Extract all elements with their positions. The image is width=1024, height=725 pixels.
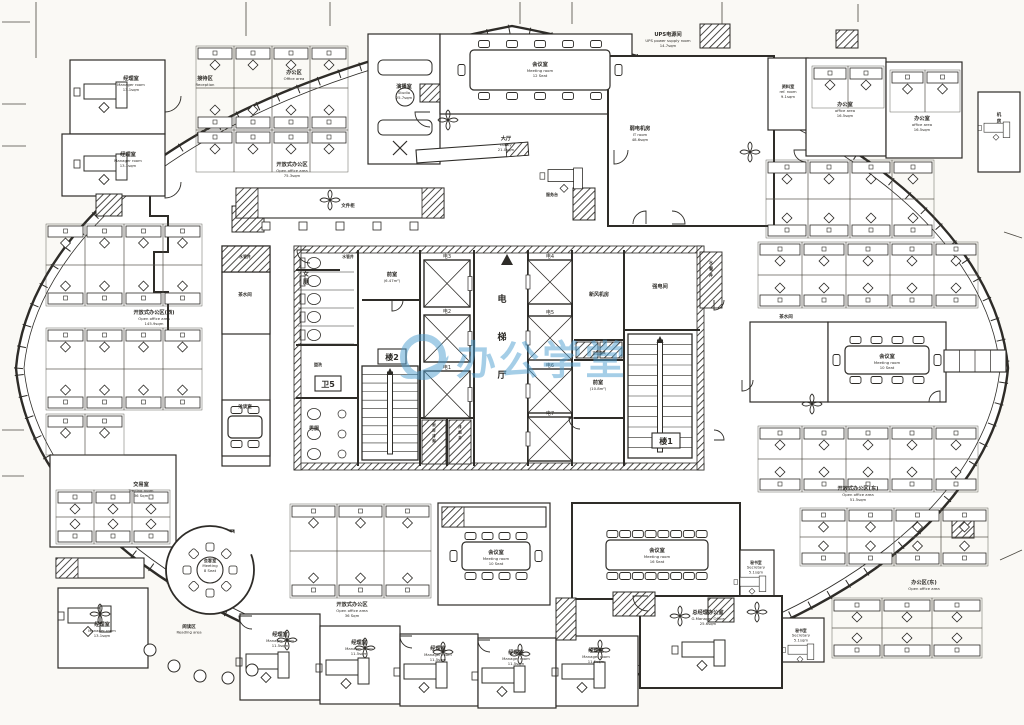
svg-text:前室: 前室 — [593, 378, 603, 386]
room-label: 强电间 — [652, 282, 668, 290]
elevator-shaft: 电7 — [526, 410, 572, 461]
svg-text:经理室: 经理室 — [351, 638, 367, 646]
room-label: 洽谈室 — [238, 403, 252, 410]
svg-text:8 Seat: 8 Seat — [204, 568, 217, 573]
svg-text:10 Seat: 10 Seat — [880, 365, 895, 370]
svg-text:11.5sqm: 11.5sqm — [272, 643, 289, 648]
elevator-shaft: 电2 — [424, 308, 472, 362]
svg-text:电5: 电5 — [546, 309, 554, 316]
cubicle-cluster — [766, 160, 934, 238]
svg-text:楼1: 楼1 — [659, 436, 673, 446]
svg-text:会议室: 会议室 — [488, 548, 504, 556]
elevator-shaft: 电3 — [424, 253, 472, 307]
svg-text:前室: 前室 — [387, 270, 397, 278]
counter — [56, 558, 144, 578]
counter — [944, 350, 1006, 372]
svg-text:电6: 电6 — [546, 362, 554, 369]
svg-text:茶水间: 茶水间 — [237, 291, 252, 298]
room-pantry-w — [222, 272, 270, 334]
elevator-shaft: 电5 — [526, 309, 572, 360]
svg-text:接待区: 接待区 — [197, 74, 213, 82]
counter — [236, 188, 444, 230]
svg-text:开放式办公区: 开放式办公区 — [276, 160, 308, 168]
svg-text:Reception: Reception — [196, 82, 216, 87]
room-label: 会客室Meeting8 Seat — [202, 557, 218, 573]
svg-text:洽谈室: 洽谈室 — [238, 403, 252, 410]
svg-text:新风机房: 新风机房 — [589, 291, 609, 298]
svg-text:电1: 电1 — [443, 364, 451, 371]
svg-text:文件柜: 文件柜 — [341, 202, 355, 209]
svg-text:16.5sqm: 16.5sqm — [914, 127, 931, 132]
room-label: 机房 — [997, 111, 1002, 125]
svg-text:演播室: 演播室 — [396, 82, 412, 90]
svg-text:机房: 机房 — [997, 111, 1002, 125]
room-label: 办公室office area16.5sqm — [835, 100, 855, 118]
svg-text:会议室: 会议室 — [879, 352, 895, 360]
svg-text:大厅: 大厅 — [501, 134, 512, 142]
svg-text:36 Sqm: 36 Sqm — [345, 613, 360, 618]
svg-text:75.3sqm: 75.3sqm — [284, 173, 301, 178]
room-pantry-e — [750, 322, 828, 402]
floor-plan-drawing: 电3电2电1电4电5电6电7卫5楼2楼1经理室Manager room13.1s… — [0, 0, 1024, 725]
room-label: 接待区Reception — [196, 74, 216, 87]
svg-text:经理室: 经理室 — [120, 150, 136, 158]
elevator-shaft: 电1 — [424, 364, 472, 418]
room-label: 演播室Studio25.7sqm — [396, 82, 413, 100]
svg-text:48.6sqm: 48.6sqm — [632, 137, 649, 142]
svg-text:36 Sqm: 36 Sqm — [134, 493, 149, 498]
svg-text:13.1sqm: 13.1sqm — [94, 633, 111, 638]
svg-text:电3: 电3 — [443, 253, 451, 260]
svg-text:经理室: 经理室 — [430, 644, 446, 652]
svg-text:25.7sqm: 25.7sqm — [396, 95, 413, 100]
svg-text:办公区(东): 办公区(东) — [911, 578, 937, 586]
svg-text:11.5sqm: 11.5sqm — [508, 661, 525, 666]
svg-text:办公区: 办公区 — [286, 68, 302, 76]
svg-text:电4: 电4 — [546, 253, 554, 260]
svg-text:11.5sqm: 11.5sqm — [588, 659, 605, 664]
svg-text:14.7sqm: 14.7sqm — [660, 43, 677, 48]
room-label: 办公区(东)Open office area — [908, 578, 939, 591]
svg-text:经理室: 经理室 — [508, 648, 524, 656]
svg-text:25.6sqm: 25.6sqm — [700, 621, 717, 626]
svg-text:弱电机房: 弱电机房 — [630, 124, 651, 132]
svg-text:会议室: 会议室 — [532, 60, 548, 68]
floor-plan-page: 电3电2电1电4电5电6电7卫5楼2楼1经理室Manager room13.1s… — [0, 0, 1024, 725]
svg-text:交易室: 交易室 — [133, 480, 149, 488]
cubicle-cluster — [758, 242, 978, 308]
room-label: 茶水间 — [237, 291, 252, 298]
cubicle-cluster — [46, 224, 202, 306]
svg-text:经理室: 经理室 — [94, 620, 110, 628]
room-label: 茶水间 — [778, 313, 793, 320]
svg-text:(10.8m²): (10.8m²) — [590, 386, 607, 391]
svg-text:13.1sqm: 13.1sqm — [120, 163, 137, 168]
room-label: 男厕 — [308, 425, 319, 432]
svg-text:总经理办公室: 总经理办公室 — [692, 608, 723, 616]
room-label: 新风机房 — [589, 291, 609, 298]
svg-text:楼2: 楼2 — [385, 352, 399, 362]
svg-text:电7: 电7 — [546, 410, 554, 417]
svg-text:经理室: 经理室 — [588, 646, 604, 654]
svg-text:9.1sqm: 9.1sqm — [781, 94, 795, 99]
shaft — [576, 342, 598, 358]
svg-text:强电间: 强电间 — [652, 282, 668, 290]
shaft — [600, 342, 622, 358]
svg-text:(6.47m²): (6.47m²) — [384, 278, 401, 283]
room-label: 办公室office area16.5sqm — [912, 114, 932, 132]
room-label: 文件柜 — [341, 202, 355, 209]
svg-text:办公室: 办公室 — [914, 114, 930, 122]
svg-text:5.1sqm: 5.1sqm — [749, 570, 763, 575]
svg-text:办公室: 办公室 — [837, 100, 853, 108]
svg-text:男厕: 男厕 — [308, 425, 319, 432]
cubicle-cluster — [800, 508, 988, 566]
svg-text:水管井: 水管井 — [341, 254, 354, 259]
svg-text:会议室: 会议室 — [649, 546, 665, 554]
svg-text:卫5: 卫5 — [321, 380, 335, 389]
svg-text:Office area: Office area — [284, 76, 305, 81]
svg-text:UPS电源间: UPS电源间 — [654, 30, 681, 38]
room-label: 办公区Office area — [284, 68, 305, 81]
room-label: 服务台 — [545, 191, 558, 197]
svg-text:11.5sqm: 11.5sqm — [351, 651, 368, 656]
elevator-shaft: 电4 — [526, 253, 572, 304]
svg-text:经理室: 经理室 — [123, 74, 139, 82]
svg-text:经理室: 经理室 — [272, 630, 288, 638]
room-label: 资料室ref. room9.1sqm — [779, 83, 796, 99]
svg-text:13.1sqm: 13.1sqm — [123, 87, 140, 92]
room-label: 正压送风 — [592, 350, 606, 355]
svg-text:5.1sqm: 5.1sqm — [794, 638, 808, 643]
svg-text:16.5sqm: 16.5sqm — [837, 113, 854, 118]
svg-text:21.0sqm: 21.0sqm — [498, 147, 515, 152]
svg-text:正压送风: 正压送风 — [592, 350, 606, 355]
svg-text:茶水间: 茶水间 — [778, 313, 793, 320]
counter — [442, 507, 546, 527]
svg-text:电2: 电2 — [443, 308, 451, 315]
cubicle-cluster — [46, 328, 202, 410]
staircase — [362, 366, 418, 460]
svg-text:Open office area: Open office area — [908, 586, 939, 591]
svg-text:16 Seat: 16 Seat — [650, 559, 665, 564]
elevator-shaft: 电6 — [526, 362, 572, 413]
cubicle-cluster — [758, 426, 978, 492]
room-shaft-w — [222, 246, 270, 272]
svg-text:开放式办公区: 开放式办公区 — [336, 600, 368, 608]
svg-text:10 Seat: 10 Seat — [489, 561, 504, 566]
svg-text:Reading area: Reading area — [176, 629, 201, 634]
svg-text:盥洗: 盥洗 — [314, 361, 322, 367]
cubicle-cluster — [832, 598, 982, 658]
svg-text:开放式办公区(西): 开放式办公区(西) — [133, 308, 174, 316]
svg-text:51.5sqm: 51.5sqm — [850, 497, 867, 502]
svg-text:水管井: 水管井 — [238, 254, 251, 259]
svg-text:145.9sqm: 145.9sqm — [145, 321, 164, 326]
svg-text:服务台: 服务台 — [545, 191, 558, 197]
cubicle-cluster — [56, 490, 170, 544]
svg-text:11.5sqm: 11.5sqm — [430, 657, 447, 662]
svg-text:12 Seat: 12 Seat — [533, 73, 548, 78]
room-label: 盥洗 — [314, 361, 322, 367]
room-label: 水管井 — [341, 254, 354, 259]
room-label: 水管井 — [238, 254, 251, 259]
svg-text:开放式办公区(东): 开放式办公区(东) — [837, 484, 878, 492]
